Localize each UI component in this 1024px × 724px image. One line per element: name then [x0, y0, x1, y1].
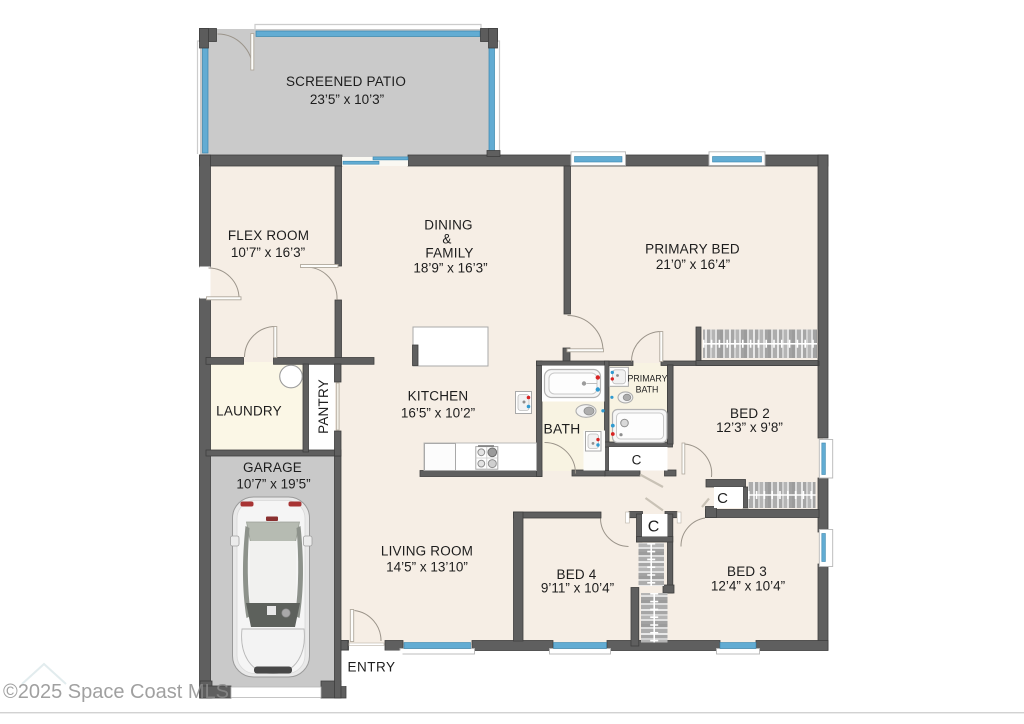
svg-text:21’0” x 16’4”: 21’0” x 16’4” — [656, 257, 730, 272]
svg-text:BATH: BATH — [636, 384, 659, 394]
svg-text:16’5” x 10’2”: 16’5” x 10’2” — [401, 406, 475, 421]
svg-text:DINING: DINING — [424, 218, 472, 233]
svg-text:14’5” x 13’10”: 14’5” x 13’10” — [386, 560, 468, 575]
svg-text:LIVING ROOM: LIVING ROOM — [381, 544, 473, 559]
svg-text:12’4” x 10’4”: 12’4” x 10’4” — [711, 579, 785, 594]
svg-text:BED 2: BED 2 — [730, 406, 770, 421]
svg-text:FAMILY: FAMILY — [425, 246, 473, 261]
svg-text:PANTRY: PANTRY — [316, 379, 331, 434]
svg-text:SCREENED PATIO: SCREENED PATIO — [286, 74, 406, 89]
svg-text:18’9” x 16’3”: 18’9” x 16’3” — [413, 261, 487, 276]
svg-text:©2025 Space Coast MLS: ©2025 Space Coast MLS — [3, 681, 229, 703]
svg-text:BED 3: BED 3 — [727, 564, 767, 579]
svg-text:BATH: BATH — [544, 422, 581, 437]
svg-text:10’7” x 16’3”: 10’7” x 16’3” — [231, 245, 305, 260]
svg-text:GARAGE: GARAGE — [243, 460, 302, 475]
svg-text:LAUNDRY: LAUNDRY — [216, 404, 282, 419]
svg-text:10’7” x 19’5”: 10’7” x 19’5” — [236, 477, 310, 492]
svg-text:12’3” x 9’8”: 12’3” x 9’8” — [716, 420, 783, 435]
svg-text:C: C — [632, 453, 642, 468]
svg-text:9’11” x 10’4”: 9’11” x 10’4” — [541, 581, 614, 596]
svg-text:C: C — [717, 490, 728, 507]
svg-text:PRIMARY BED: PRIMARY BED — [645, 242, 740, 257]
svg-text:23’5” x 10’3”: 23’5” x 10’3” — [310, 92, 384, 107]
svg-text:FLEX ROOM: FLEX ROOM — [228, 228, 309, 243]
svg-text:C: C — [648, 519, 660, 536]
svg-text:KITCHEN: KITCHEN — [408, 389, 469, 404]
svg-text:ENTRY: ENTRY — [348, 660, 396, 675]
svg-text:PRIMARY: PRIMARY — [628, 373, 668, 383]
svg-text:&: & — [442, 232, 451, 247]
